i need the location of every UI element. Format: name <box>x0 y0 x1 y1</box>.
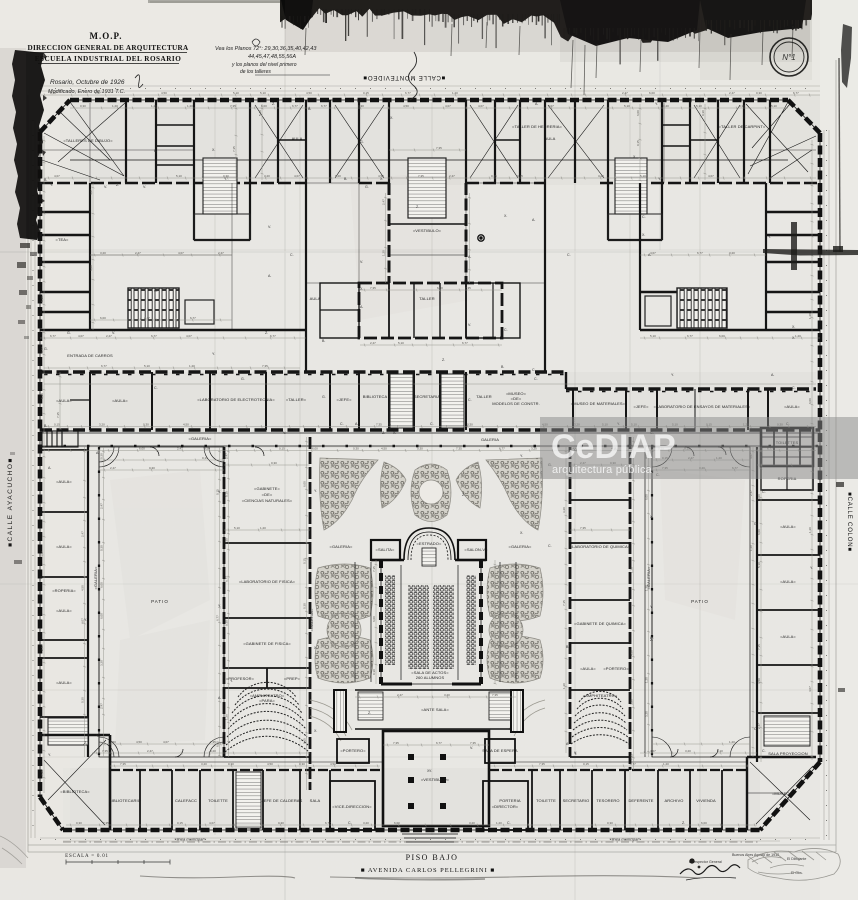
svg-text:6,77: 6,77 <box>270 334 276 338</box>
svg-text:2,47: 2,47 <box>135 251 141 255</box>
svg-text:Y.: Y. <box>655 102 658 106</box>
svg-text:6,77: 6,77 <box>499 446 505 450</box>
svg-text:0,30: 0,30 <box>739 104 745 108</box>
svg-text:B.: B. <box>308 107 311 111</box>
svg-text:Z.: Z. <box>116 183 119 187</box>
svg-text:=AULA=: =AULA= <box>56 398 72 403</box>
svg-text:5,10: 5,10 <box>696 104 702 108</box>
svg-text:0,15: 0,15 <box>636 140 640 146</box>
svg-text:=AULA=: =AULA= <box>56 544 72 549</box>
svg-text:Z.: Z. <box>416 205 419 209</box>
svg-text:2,47: 2,47 <box>177 446 183 450</box>
svg-text:=AMPHITEATRO=: =AMPHITEATRO= <box>583 693 618 698</box>
svg-text:5,10: 5,10 <box>258 110 262 116</box>
svg-text:1,20: 1,20 <box>187 104 193 108</box>
svg-text:4,50: 4,50 <box>306 91 312 95</box>
svg-text:■CALLE MONTEVIDEO■: ■CALLE MONTEVIDEO■ <box>363 74 446 80</box>
svg-text:DIRECCION GENERAL DE ARQUITECT: DIRECCION GENERAL DE ARQUITECTURA <box>27 44 189 52</box>
svg-text:B.: B. <box>566 645 569 649</box>
svg-text:5,10: 5,10 <box>233 91 239 95</box>
svg-text:C.: C. <box>534 377 538 381</box>
svg-text:0,15: 0,15 <box>491 174 497 178</box>
svg-text:arquitectura pública: arquitectura pública <box>552 464 653 476</box>
svg-text:7,35: 7,35 <box>102 749 108 753</box>
svg-text:7,35: 7,35 <box>393 741 399 745</box>
svg-text:0,30: 0,30 <box>756 91 762 95</box>
svg-text:MODELOS DE CONSTR.: MODELOS DE CONSTR. <box>492 401 540 406</box>
svg-text:5,10: 5,10 <box>640 174 646 178</box>
svg-text:6,77: 6,77 <box>190 316 196 320</box>
svg-text:Modificado, Enero de 1931 T.C.: Modificado, Enero de 1931 T.C. <box>48 89 125 95</box>
svg-text:X.: X. <box>314 646 317 650</box>
svg-text:C.: C. <box>792 386 796 390</box>
svg-text:Y.: Y. <box>650 605 653 609</box>
svg-text:=linea municipal=: =linea municipal= <box>609 837 641 842</box>
svg-text:=PROFESOR=: =PROFESOR= <box>226 676 255 681</box>
svg-text:A.: A. <box>96 451 99 455</box>
svg-text:TOILETTE: TOILETTE <box>208 798 228 803</box>
svg-text:=AULA=: =AULA= <box>780 634 796 639</box>
svg-text:X.: X. <box>520 531 523 535</box>
svg-text:3,20: 3,20 <box>469 821 475 825</box>
svg-text:Y.: Y. <box>50 183 53 187</box>
svg-text:=ANTE SALA=: =ANTE SALA= <box>421 707 449 712</box>
svg-text:1,20: 1,20 <box>562 683 566 689</box>
svg-text:6,77: 6,77 <box>215 615 219 621</box>
svg-text:Y.: Y. <box>218 604 221 608</box>
svg-text:0,30: 0,30 <box>467 422 473 426</box>
svg-text:PATIO: PATIO <box>151 599 169 604</box>
svg-text:Z.: Z. <box>462 493 465 497</box>
svg-text:7,35: 7,35 <box>465 286 471 290</box>
svg-text:1,20: 1,20 <box>644 677 648 683</box>
svg-text:C.: C. <box>507 821 511 825</box>
svg-text:■CALLE COLON■: ■CALLE COLON■ <box>846 492 852 552</box>
svg-text:TOILETTE: TOILETTE <box>536 798 556 803</box>
svg-text:0,30: 0,30 <box>278 821 284 825</box>
svg-text:=PORTERO=: =PORTERO= <box>603 666 629 671</box>
svg-text:Y.: Y. <box>658 177 661 181</box>
svg-text:0,30: 0,30 <box>99 453 103 459</box>
svg-text:6,00: 6,00 <box>649 91 655 95</box>
svg-text:G.: G. <box>322 395 326 399</box>
svg-text:6,00: 6,00 <box>100 316 106 320</box>
svg-text:C.: C. <box>340 422 344 426</box>
svg-text:0,30: 0,30 <box>228 762 234 766</box>
svg-text:Rosario, Octubre de 1926: Rosario, Octubre de 1926 <box>50 79 125 86</box>
svg-text:2,47: 2,47 <box>370 341 376 345</box>
svg-text:5,10: 5,10 <box>398 341 404 345</box>
svg-text:2,47: 2,47 <box>110 466 116 470</box>
svg-text:6,00: 6,00 <box>312 446 318 450</box>
svg-text:6,00: 6,00 <box>719 334 725 338</box>
svg-text:4,07: 4,07 <box>163 740 169 744</box>
svg-text:A.: A. <box>268 274 271 278</box>
svg-text:0,30: 0,30 <box>701 110 705 116</box>
svg-text:0,15: 0,15 <box>363 91 369 95</box>
svg-text:0,30: 0,30 <box>353 446 359 450</box>
svg-text:0,30: 0,30 <box>358 104 364 108</box>
svg-text:A.: A. <box>360 305 363 309</box>
svg-text:5,10: 5,10 <box>40 393 44 399</box>
svg-text:6,77: 6,77 <box>462 341 468 345</box>
svg-text:7,35: 7,35 <box>56 412 60 418</box>
svg-text:G.: G. <box>360 140 364 144</box>
svg-text:=LABORATORIO DE ELECTROTECNIA=: =LABORATORIO DE ELECTROTECNIA= <box>197 397 275 402</box>
svg-text:A.: A. <box>48 466 51 470</box>
svg-text:2,47: 2,47 <box>397 693 403 697</box>
svg-text:=MUSEO=: =MUSEO= <box>772 791 793 796</box>
svg-text:AULA: AULA <box>545 136 556 141</box>
svg-text:Y.: Y. <box>218 490 221 494</box>
svg-text:1,20: 1,20 <box>629 567 633 573</box>
svg-text:5,10: 5,10 <box>234 526 240 530</box>
svg-text:7,35: 7,35 <box>224 538 228 544</box>
svg-text:Z.: Z. <box>442 358 445 362</box>
svg-text:4,50: 4,50 <box>161 91 167 95</box>
svg-text:=TALLER DE HERRERIA=: =TALLER DE HERRERIA= <box>512 124 563 129</box>
svg-text:1,20: 1,20 <box>224 714 228 720</box>
svg-text:B.: B. <box>501 365 504 369</box>
svg-text:0,30: 0,30 <box>299 762 305 766</box>
svg-text:=LABORATORIO DE ENSAYOS DE MAT: =LABORATORIO DE ENSAYOS DE MATERIALES= <box>654 404 751 409</box>
svg-text:6,77: 6,77 <box>101 364 107 368</box>
svg-text:4,07: 4,07 <box>650 749 656 753</box>
svg-text:6,00: 6,00 <box>437 286 443 290</box>
svg-text:7,35: 7,35 <box>470 741 476 745</box>
svg-text:=AULA=: =AULA= <box>780 579 796 584</box>
svg-text:Z.: Z. <box>84 741 87 745</box>
svg-text:Y.: Y. <box>314 489 317 493</box>
svg-text:2,47: 2,47 <box>218 251 224 255</box>
svg-text:X.: X. <box>212 148 215 152</box>
svg-text:0,15: 0,15 <box>583 762 589 766</box>
svg-text:=AULA=: =AULA= <box>56 608 72 613</box>
svg-text:3,20: 3,20 <box>363 821 369 825</box>
svg-text:6,00: 6,00 <box>644 494 648 500</box>
svg-text:2,47: 2,47 <box>99 703 103 709</box>
svg-text:4,50: 4,50 <box>381 446 387 450</box>
svg-text:=PORTERO=: =PORTERO= <box>340 748 366 753</box>
svg-text:X.: X. <box>390 116 393 120</box>
svg-text:=VESTIBULO=: =VESTIBULO= <box>421 777 450 782</box>
svg-text:1,20: 1,20 <box>260 526 266 530</box>
svg-text:3,20: 3,20 <box>100 251 106 255</box>
svg-text:2,47: 2,47 <box>80 531 84 537</box>
svg-text:7,35: 7,35 <box>232 146 236 152</box>
svg-text:2,47: 2,47 <box>449 174 455 178</box>
svg-text:y los planos del nivel primero: y los planos del nivel primero <box>231 62 297 68</box>
svg-text:0,30: 0,30 <box>80 697 84 703</box>
svg-text:PISO BAJO: PISO BAJO <box>406 853 459 862</box>
svg-text:2,47: 2,47 <box>381 199 385 205</box>
svg-text:4,50: 4,50 <box>330 762 336 766</box>
svg-text:C.: C. <box>532 368 536 372</box>
svg-text:V.: V. <box>104 185 107 189</box>
svg-text:7,35: 7,35 <box>757 644 761 650</box>
svg-text:de los talleres: de los talleres <box>240 69 271 75</box>
svg-text:1,20: 1,20 <box>335 174 341 178</box>
svg-text:BIBLIOTECARIO: BIBLIOTECARIO <box>109 798 141 803</box>
svg-text:4,07: 4,07 <box>54 174 60 178</box>
svg-text:5,10: 5,10 <box>40 296 44 302</box>
svg-text:7,35: 7,35 <box>492 693 498 697</box>
svg-text:0,30: 0,30 <box>271 461 277 465</box>
svg-text:=TALLER DE CARPINT=: =TALLER DE CARPINT= <box>719 124 766 129</box>
svg-text:2,47: 2,47 <box>99 503 103 509</box>
svg-text:G.: G. <box>241 377 245 381</box>
svg-text:260 ALUMNOS: 260 ALUMNOS <box>416 675 445 680</box>
svg-text:7,35: 7,35 <box>580 526 586 530</box>
svg-text:4,07: 4,07 <box>445 104 451 108</box>
svg-text:7,35: 7,35 <box>436 146 442 150</box>
svg-text:=CIENCIAS NATURALES=: =CIENCIAS NATURALES= <box>242 498 293 503</box>
svg-text:SALA: SALA <box>310 798 321 803</box>
svg-text:JEFE DE CALDERAS: JEFE DE CALDERAS <box>262 798 303 803</box>
svg-text:6,77: 6,77 <box>224 576 228 582</box>
svg-text:X.: X. <box>642 233 645 237</box>
svg-text:PORTERIA: PORTERIA <box>499 798 520 803</box>
svg-text:7,35: 7,35 <box>372 566 376 572</box>
svg-text:=GABINETE DE FISICA=: =GABINETE DE FISICA= <box>243 641 291 646</box>
svg-text:AULA: AULA <box>292 136 303 141</box>
svg-text:Y.: Y. <box>84 618 87 622</box>
svg-text:7,35: 7,35 <box>40 770 44 776</box>
svg-text:7,35: 7,35 <box>629 754 633 760</box>
svg-text:4,07: 4,07 <box>89 189 93 195</box>
svg-text:0,15: 0,15 <box>302 558 306 564</box>
svg-text:C.: C. <box>430 422 434 426</box>
svg-text:V.: V. <box>388 422 391 426</box>
svg-text:2,47: 2,47 <box>749 490 753 496</box>
svg-text:4,50: 4,50 <box>110 740 116 744</box>
svg-text:0,30: 0,30 <box>76 821 82 825</box>
svg-text:=VESTIBULO=: =VESTIBULO= <box>413 228 442 233</box>
svg-text:A.: A. <box>532 218 535 222</box>
svg-text:CALEFACC: CALEFACC <box>175 798 197 803</box>
svg-text:=ESTRADO=: =ESTRADO= <box>417 541 442 546</box>
svg-text:4,07: 4,07 <box>478 104 484 108</box>
svg-text:=MUSEO DE MATERIALES=: =MUSEO DE MATERIALES= <box>571 401 626 406</box>
svg-text:1,20: 1,20 <box>795 334 801 338</box>
svg-text:Y.: Y. <box>574 752 577 756</box>
svg-text:Y.: Y. <box>212 352 215 356</box>
svg-text:3,20: 3,20 <box>644 711 648 717</box>
svg-text:0,15: 0,15 <box>177 821 183 825</box>
svg-text:PATIO: PATIO <box>691 599 709 604</box>
svg-text:TALLER: TALLER <box>419 296 434 301</box>
svg-text:V.: V. <box>360 260 363 264</box>
svg-text:=GALERIA=: =GALERIA= <box>189 436 212 441</box>
svg-text:1,20: 1,20 <box>151 104 157 108</box>
svg-text:2,47: 2,47 <box>224 453 228 459</box>
svg-text:GALERIA: GALERIA <box>481 437 499 442</box>
svg-text:4,07: 4,07 <box>808 686 812 692</box>
svg-text:C.: C. <box>548 544 552 548</box>
svg-text:V.: V. <box>470 746 473 750</box>
svg-text:C.: C. <box>762 490 766 494</box>
svg-text:5,10: 5,10 <box>260 91 266 95</box>
svg-text:ESCUELA INDUSTRIAL DEL ROSARIO: ESCUELA INDUSTRIAL DEL ROSARIO <box>35 55 182 63</box>
svg-text:X.: X. <box>650 515 653 519</box>
svg-text:=GALERIA=: =GALERIA= <box>509 544 532 549</box>
svg-text:TESORERO: TESORERO <box>596 798 619 803</box>
svg-text:Y.: Y. <box>520 454 523 458</box>
svg-text:SECRETARIA: SECRETARIA <box>414 394 440 399</box>
svg-text:3,20: 3,20 <box>264 174 270 178</box>
svg-text:=PARA=: =PARA= <box>259 698 275 703</box>
svg-text:5,10: 5,10 <box>144 364 150 368</box>
svg-text:X.: X. <box>393 431 396 435</box>
svg-text:A.: A. <box>218 696 221 700</box>
svg-text:SALA DE ESPERA: SALA DE ESPERA <box>482 748 518 753</box>
svg-text:=GALERIA=: =GALERIA= <box>330 544 353 549</box>
svg-text:0,30: 0,30 <box>80 104 86 108</box>
svg-text:V.: V. <box>268 225 271 229</box>
svg-text:6,00: 6,00 <box>701 821 707 825</box>
svg-text:0,30: 0,30 <box>224 620 228 626</box>
svg-text:X.: X. <box>633 155 636 159</box>
svg-text:3,20: 3,20 <box>598 174 604 178</box>
svg-text:Z.: Z. <box>272 102 275 106</box>
svg-text:SALA PROYECCION: SALA PROYECCION <box>768 751 808 756</box>
svg-text:0,15: 0,15 <box>54 422 60 426</box>
svg-text:1,20: 1,20 <box>452 91 458 95</box>
svg-text:6,77: 6,77 <box>436 741 442 745</box>
svg-text:3,20: 3,20 <box>562 507 566 513</box>
svg-text:0,30: 0,30 <box>302 603 306 609</box>
svg-text:4,50: 4,50 <box>183 422 189 426</box>
svg-text:=GABINETE=: =GABINETE= <box>254 486 280 491</box>
svg-text:C.: C. <box>762 749 766 753</box>
svg-text:1,20: 1,20 <box>729 740 735 744</box>
svg-text:=BIBLIOTECA=: =BIBLIOTECA= <box>60 789 90 794</box>
svg-text:4,07: 4,07 <box>548 104 554 108</box>
svg-text:3,20: 3,20 <box>685 749 691 753</box>
svg-text:=LABORATORIO DE QUIMICA=: =LABORATORIO DE QUIMICA= <box>570 544 631 549</box>
svg-text:0,30: 0,30 <box>143 422 149 426</box>
svg-text:6,00: 6,00 <box>89 265 93 271</box>
svg-text:6,77: 6,77 <box>151 334 157 338</box>
svg-text:4,50: 4,50 <box>757 678 761 684</box>
svg-text:6,00: 6,00 <box>99 613 103 619</box>
svg-text:■ AVENIDA CARLOS PELLEGRINI ■: ■ AVENIDA CARLOS PELLEGRINI ■ <box>361 867 496 874</box>
svg-text:=VICE-DIRECCION=: =VICE-DIRECCION= <box>332 804 372 809</box>
svg-text:=AULA=: =AULA= <box>112 398 128 403</box>
svg-text:C.: C. <box>504 328 508 332</box>
svg-text:=JEFE=: =JEFE= <box>336 397 352 402</box>
svg-text:=AULA=: =AULA= <box>780 524 796 529</box>
svg-text:V.: V. <box>112 331 115 335</box>
svg-text:=TALLERES DE DIBUJO=: =TALLERES DE DIBUJO= <box>63 138 113 143</box>
svg-text:6,77: 6,77 <box>687 334 693 338</box>
svg-text:3,20: 3,20 <box>629 699 633 705</box>
svg-text:Z.: Z. <box>368 711 371 715</box>
svg-text:6,77: 6,77 <box>793 91 799 95</box>
svg-text:A.: A. <box>386 591 389 595</box>
svg-text:C.: C. <box>290 253 294 257</box>
svg-text:Z.: Z. <box>650 638 653 642</box>
svg-text:6,00: 6,00 <box>757 529 761 535</box>
svg-text:=PREP=: =PREP= <box>284 676 301 681</box>
svg-text:X.: X. <box>792 336 795 340</box>
svg-text:6,77: 6,77 <box>325 821 331 825</box>
svg-text:B.: B. <box>154 149 157 153</box>
svg-text:=AULA=: =AULA= <box>56 680 72 685</box>
svg-text:6,00: 6,00 <box>636 110 640 116</box>
svg-text:6,00: 6,00 <box>757 494 761 500</box>
svg-text:4,07: 4,07 <box>294 174 300 178</box>
svg-text:6,77: 6,77 <box>292 104 298 108</box>
svg-text:2,47: 2,47 <box>729 91 735 95</box>
svg-text:B.: B. <box>322 339 325 343</box>
svg-text:X.: X. <box>380 177 383 181</box>
svg-text:=GALERIA=: =GALERIA= <box>93 566 98 589</box>
svg-text:X.: X. <box>792 325 795 329</box>
svg-text:=AULA=: =AULA= <box>580 666 596 671</box>
svg-text:7,35: 7,35 <box>376 422 382 426</box>
svg-text:G.: G. <box>754 522 758 526</box>
svg-text:1,20: 1,20 <box>496 821 502 825</box>
svg-text:N°1: N°1 <box>782 53 795 62</box>
svg-text:5,10: 5,10 <box>224 491 228 497</box>
svg-text:0,15: 0,15 <box>202 456 208 460</box>
svg-text:4,07: 4,07 <box>40 551 44 557</box>
svg-text:A.: A. <box>771 373 774 377</box>
svg-text:C.: C. <box>468 398 472 402</box>
svg-text:=linea municipal=: =linea municipal= <box>174 837 206 842</box>
svg-text:4,50: 4,50 <box>629 650 633 656</box>
svg-text:0,30: 0,30 <box>417 446 423 450</box>
svg-text:V.: V. <box>283 431 286 435</box>
svg-text:0,30: 0,30 <box>149 466 155 470</box>
svg-text:G.: G. <box>154 289 158 293</box>
svg-text:ESCALA = 0.01: ESCALA = 0.01 <box>65 854 109 859</box>
svg-text:ENTRADA DE CARROS: ENTRADA DE CARROS <box>67 353 113 358</box>
svg-text:=SALON-V=: =SALON-V= <box>464 547 488 552</box>
svg-text:3,20: 3,20 <box>729 251 735 255</box>
svg-text:4,07: 4,07 <box>209 821 215 825</box>
svg-text:1,20: 1,20 <box>749 545 753 551</box>
svg-text:1,20: 1,20 <box>112 104 118 108</box>
svg-text:7,35: 7,35 <box>539 762 545 766</box>
svg-text:Y.: Y. <box>671 373 674 377</box>
svg-text:A.: A. <box>566 742 569 746</box>
svg-text:2,47: 2,47 <box>622 91 628 95</box>
svg-text:5,10: 5,10 <box>650 334 656 338</box>
svg-text:Y.: Y. <box>429 769 432 773</box>
svg-text:Y.: Y. <box>48 753 51 757</box>
svg-text:1,20: 1,20 <box>808 527 812 533</box>
svg-text:A.: A. <box>468 255 471 259</box>
svg-text:6,77: 6,77 <box>405 91 411 95</box>
svg-text:B.: B. <box>344 177 347 181</box>
svg-text:=JEFE=: =JEFE= <box>633 404 649 409</box>
svg-text:3,20: 3,20 <box>99 660 103 666</box>
svg-text:6,00: 6,00 <box>139 446 145 450</box>
svg-text:AULA: AULA <box>310 296 321 301</box>
svg-text:A.: A. <box>355 422 358 426</box>
svg-text:5,10: 5,10 <box>176 174 182 178</box>
svg-text:6,00: 6,00 <box>372 616 376 622</box>
svg-text:BIBLIOTECA: BIBLIOTECA <box>363 394 388 399</box>
svg-text:44,45,47,48,55,56A: 44,45,47,48,55,56A <box>248 54 296 60</box>
svg-text:=GABINETE DE QUIMICA=: =GABINETE DE QUIMICA= <box>574 621 626 626</box>
svg-text:ARCHIVO: ARCHIVO <box>665 798 684 803</box>
svg-text:1,20: 1,20 <box>663 762 669 766</box>
svg-text:2,47: 2,47 <box>40 645 44 651</box>
svg-text:4,07: 4,07 <box>178 251 184 255</box>
